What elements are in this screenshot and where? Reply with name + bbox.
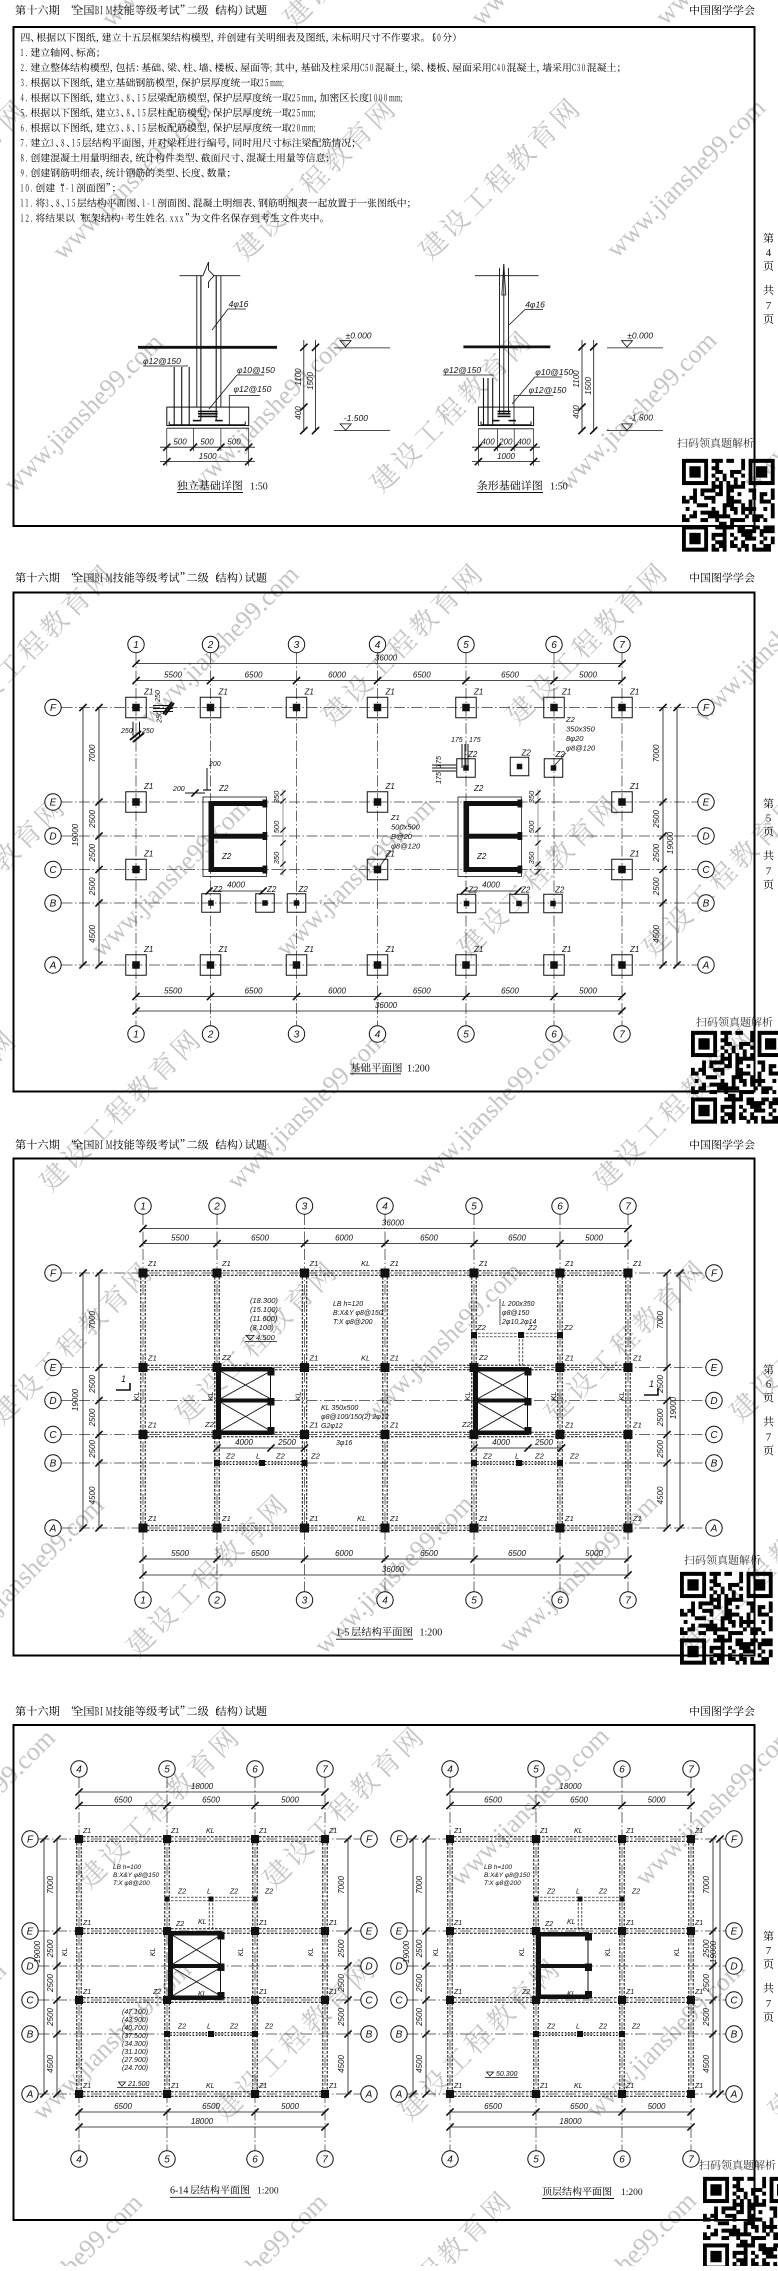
svg-text:φ10@150: φ10@150	[237, 365, 275, 375]
svg-text:1:200: 1:200	[621, 2188, 643, 2198]
svg-text:200: 200	[172, 786, 185, 793]
svg-text:A: A	[365, 2090, 373, 2101]
svg-text:B: B	[366, 2030, 373, 2041]
svg-text:D: D	[710, 1396, 717, 1407]
svg-text:400: 400	[572, 405, 581, 419]
svg-text:Z2: Z2	[468, 886, 479, 895]
svg-text:2500: 2500	[88, 810, 97, 829]
svg-text:(40.700): (40.700)	[122, 2025, 148, 2032]
svg-text:2500: 2500	[277, 1438, 296, 1447]
svg-text:5: 5	[766, 813, 772, 825]
svg-text:Z2: Z2	[555, 750, 566, 759]
svg-text:6000: 6000	[335, 1234, 353, 1243]
svg-text:6500: 6500	[420, 1234, 438, 1243]
svg-text:C: C	[702, 865, 710, 876]
svg-text:Z1: Z1	[258, 1989, 267, 1996]
svg-text:Z1: Z1	[629, 688, 639, 697]
svg-text:7: 7	[766, 1945, 772, 1957]
svg-text:±0.000: ±0.000	[346, 331, 372, 341]
svg-text:KL: KL	[519, 1948, 526, 1957]
svg-text:4: 4	[382, 1202, 388, 1213]
svg-text:2500: 2500	[337, 2008, 346, 2027]
svg-text:D: D	[730, 1962, 737, 1973]
svg-text:Z1: Z1	[385, 782, 395, 791]
svg-text:B: B	[703, 899, 710, 910]
svg-text:2500: 2500	[652, 810, 661, 829]
svg-text:Z1: Z1	[453, 2083, 462, 2090]
svg-text:4: 4	[76, 2155, 82, 2166]
svg-text:Z2: Z2	[546, 1889, 555, 1896]
svg-text:Z2: Z2	[521, 1989, 530, 1996]
svg-text:7000: 7000	[652, 744, 661, 762]
svg-text:KL: KL	[62, 1948, 69, 1957]
svg-text:6000: 6000	[328, 987, 346, 996]
svg-text:19000: 19000	[666, 831, 675, 854]
svg-text:Z2: Z2	[212, 885, 223, 894]
svg-text:Z1: Z1	[390, 813, 400, 822]
svg-text:4500: 4500	[652, 925, 661, 943]
svg-text:Z1: Z1	[625, 1920, 634, 1927]
svg-text:Z1: Z1	[147, 1514, 157, 1523]
svg-text:4: 4	[382, 1596, 388, 1607]
svg-text:Z2: Z2	[546, 2024, 555, 2031]
svg-text:6000: 6000	[328, 671, 346, 680]
svg-text:400: 400	[481, 438, 495, 447]
svg-text:Z1: Z1	[143, 688, 153, 697]
svg-text:Z2: Z2	[177, 1889, 186, 1896]
svg-text:6500: 6500	[251, 1549, 269, 1558]
svg-text:KL: KL	[308, 1948, 315, 1957]
svg-text:Z1: Z1	[328, 2083, 337, 2090]
svg-text:2500: 2500	[88, 1440, 97, 1459]
svg-text:Z1: Z1	[170, 1828, 179, 1835]
svg-text:E: E	[731, 1927, 738, 1938]
svg-text:KL: KL	[433, 1948, 440, 1957]
svg-text:5000: 5000	[648, 1796, 666, 1805]
svg-text:6500: 6500	[413, 987, 431, 996]
svg-text:5000: 5000	[648, 2102, 666, 2111]
svg-text:2500: 2500	[337, 1939, 346, 1958]
svg-text:A: A	[395, 2090, 403, 2101]
svg-text:2500: 2500	[415, 1939, 424, 1958]
svg-text:19000: 19000	[402, 1940, 411, 1963]
svg-text:250: 250	[155, 690, 162, 703]
svg-text:C: C	[49, 865, 57, 876]
svg-text:Z1: Z1	[82, 1989, 91, 1996]
svg-text:Z1: Z1	[385, 850, 395, 859]
svg-text:F: F	[366, 1835, 373, 1846]
svg-text:4500: 4500	[415, 2055, 424, 2073]
svg-text:Z2: Z2	[266, 885, 277, 894]
svg-text:36000: 36000	[375, 1001, 398, 1010]
svg-text:2500: 2500	[415, 2008, 424, 2027]
svg-text:2: 2	[213, 1596, 220, 1607]
svg-text:4500: 4500	[702, 2055, 711, 2073]
svg-text:350x350: 350x350	[566, 725, 596, 734]
svg-text:F: F	[50, 1269, 57, 1280]
svg-text:3: 3	[294, 640, 300, 651]
svg-text:C: C	[730, 1996, 738, 2007]
svg-text:C: C	[49, 1430, 57, 1441]
svg-text:7000: 7000	[88, 1311, 97, 1329]
svg-text:Z1: Z1	[564, 1354, 574, 1363]
svg-text:Z1: Z1	[82, 2083, 91, 2090]
svg-text:Z2: Z2	[229, 1889, 238, 1896]
svg-text:2500: 2500	[656, 1408, 665, 1427]
svg-text:T:X φ8@200: T:X φ8@200	[333, 1319, 373, 1326]
svg-text:(18.300): (18.300)	[250, 1296, 278, 1305]
svg-text:Z1: Z1	[143, 850, 153, 859]
svg-text:φ10@150: φ10@150	[535, 367, 573, 377]
svg-text:2500: 2500	[415, 1974, 424, 1993]
svg-text:Z2: Z2	[221, 1353, 232, 1362]
svg-text:KL: KL	[206, 1828, 215, 1835]
svg-text:Z2: Z2	[478, 1353, 489, 1362]
svg-text:500x500: 500x500	[391, 823, 421, 832]
svg-text:4: 4	[375, 640, 381, 651]
svg-text:2500: 2500	[88, 843, 97, 862]
svg-text:T:X φ8@200: T:X φ8@200	[113, 1880, 150, 1887]
svg-text:Z2: Z2	[598, 2024, 607, 2031]
svg-text:LB h=100: LB h=100	[484, 1864, 512, 1871]
svg-text:φ8@100/150(2) 2φ12: φ8@100/150(2) 2φ12	[321, 1414, 389, 1421]
svg-text:2500: 2500	[46, 1974, 55, 1993]
svg-text:350: 350	[527, 790, 536, 803]
svg-text:1500: 1500	[199, 452, 217, 461]
svg-text:5: 5	[471, 1596, 477, 1607]
svg-text:E: E	[27, 1927, 34, 1938]
svg-text:500: 500	[272, 820, 281, 833]
svg-text:6500: 6500	[202, 1796, 220, 1805]
svg-text:F: F	[27, 1835, 34, 1846]
svg-text:7: 7	[619, 1030, 625, 1041]
svg-text:2: 2	[213, 1202, 220, 1213]
svg-text:Z1: Z1	[473, 688, 483, 697]
svg-text:Z1: Z1	[328, 1828, 337, 1835]
svg-text:B:X&Y φ8@150: B:X&Y φ8@150	[113, 1872, 160, 1879]
svg-text:(27.900): (27.900)	[122, 2057, 148, 2064]
svg-text:19000: 19000	[71, 823, 80, 846]
svg-text:L: L	[576, 2024, 580, 2031]
svg-text:7000: 7000	[337, 1876, 346, 1894]
svg-text:6000: 6000	[335, 1549, 353, 1558]
svg-text:KL: KL	[361, 1259, 370, 1268]
svg-text:KL: KL	[206, 2083, 215, 2090]
svg-text:L 200x350: L 200x350	[502, 1301, 535, 1308]
svg-text:5500: 5500	[164, 671, 182, 680]
svg-text:Z1: Z1	[389, 1259, 399, 1268]
svg-text:Z2: Z2	[520, 886, 531, 895]
svg-text:Z1: Z1	[694, 1989, 703, 1996]
svg-text:Z1: Z1	[82, 1920, 91, 1927]
svg-text:Z1: Z1	[143, 782, 153, 791]
svg-text:3φ16: 3φ16	[336, 1440, 352, 1447]
svg-text:B:X&Y φ8@150: B:X&Y φ8@150	[484, 1872, 531, 1879]
svg-text:2500: 2500	[702, 2008, 711, 2027]
svg-text:6500: 6500	[501, 671, 519, 680]
svg-text:6500: 6500	[484, 1796, 502, 1805]
svg-text:500: 500	[200, 438, 214, 447]
svg-text:Z2: Z2	[482, 1452, 493, 1461]
svg-text:E: E	[396, 1927, 403, 1938]
svg-text:Z1: Z1	[694, 1920, 703, 1927]
svg-text:KL: KL	[574, 2083, 583, 2090]
svg-text:φ12@150: φ12@150	[143, 356, 181, 366]
svg-text:KL: KL	[294, 1391, 303, 1400]
svg-text:D: D	[702, 832, 709, 843]
svg-text:36000: 36000	[382, 1565, 405, 1574]
svg-text:A: A	[702, 961, 710, 972]
svg-text:Z1: Z1	[258, 2083, 267, 2090]
svg-text:6500: 6500	[484, 2102, 502, 2111]
svg-text:6500: 6500	[202, 2102, 220, 2111]
svg-text:36000: 36000	[382, 1219, 405, 1228]
svg-text:LB h=120: LB h=120	[333, 1301, 363, 1308]
svg-text:4000: 4000	[235, 1438, 253, 1447]
svg-text:A: A	[26, 2090, 34, 2101]
svg-text:1500: 1500	[584, 377, 593, 395]
svg-text:B: B	[50, 1459, 57, 1470]
svg-text:Z1: Z1	[218, 688, 228, 697]
svg-text:4φ16: 4φ16	[229, 299, 249, 309]
svg-text:B@20: B@20	[391, 832, 413, 841]
svg-text:6: 6	[766, 1379, 772, 1391]
svg-text:7000: 7000	[88, 744, 97, 762]
svg-text:(43.900): (43.900)	[122, 2017, 148, 2024]
svg-text:1: 1	[121, 1374, 126, 1384]
svg-text:Z1: Z1	[389, 1354, 399, 1363]
svg-text:B: B	[50, 899, 57, 910]
svg-text:Z1: Z1	[629, 850, 639, 859]
svg-text:1:50: 1:50	[550, 482, 568, 493]
svg-text:4000: 4000	[482, 881, 500, 890]
svg-text:Z2: Z2	[467, 750, 478, 759]
svg-text:Z2: Z2	[565, 715, 576, 724]
svg-text:2500: 2500	[652, 877, 661, 896]
svg-text:4: 4	[76, 1765, 82, 1776]
svg-text:7000: 7000	[702, 1876, 711, 1894]
svg-text:200: 200	[498, 438, 513, 447]
svg-text:6500: 6500	[114, 2102, 132, 2111]
svg-text:500: 500	[527, 820, 536, 833]
svg-text:Z1: Z1	[309, 1421, 319, 1430]
svg-text:(15.100): (15.100)	[250, 1305, 278, 1314]
svg-text:5500: 5500	[171, 1234, 189, 1243]
svg-text:Z1: Z1	[389, 1421, 399, 1430]
svg-text:2: 2	[207, 1030, 214, 1041]
svg-text:B:X&Y φ8@150: B:X&Y φ8@150	[333, 1310, 383, 1317]
svg-text:50.300: 50.300	[496, 2071, 518, 2078]
svg-text:200: 200	[208, 761, 221, 768]
svg-text:1000: 1000	[497, 452, 515, 461]
svg-text:7: 7	[619, 640, 625, 651]
svg-text:Z1: Z1	[632, 1421, 642, 1430]
svg-text:175: 175	[436, 772, 443, 784]
svg-text:Z1: Z1	[694, 1828, 703, 1835]
svg-text:Z2: Z2	[534, 1452, 545, 1461]
svg-text:±0.000: ±0.000	[627, 331, 653, 341]
svg-text:250: 250	[157, 711, 164, 724]
svg-text:18000: 18000	[191, 2117, 214, 2126]
svg-text:Z2: Z2	[221, 852, 232, 861]
svg-text:18000: 18000	[191, 1782, 214, 1791]
svg-text:F: F	[731, 1835, 738, 1846]
svg-text:Z1: Z1	[625, 2083, 634, 2090]
svg-text:A: A	[49, 961, 57, 972]
svg-text:φ12@150: φ12@150	[529, 385, 567, 395]
svg-text:19000: 19000	[709, 1940, 718, 1963]
svg-text:A: A	[730, 2090, 738, 2101]
svg-text:3: 3	[294, 1030, 300, 1041]
svg-text:2500: 2500	[46, 1939, 55, 1958]
svg-text:6: 6	[252, 1765, 258, 1776]
svg-text:1: 1	[140, 1596, 146, 1607]
svg-text:7: 7	[322, 1765, 328, 1776]
svg-text:Z2: Z2	[476, 852, 487, 861]
svg-text:KL: KL	[238, 1948, 245, 1957]
svg-text:19000: 19000	[71, 1388, 80, 1411]
svg-text:4500: 4500	[656, 1486, 665, 1504]
svg-text:B: B	[731, 2030, 738, 2041]
svg-text:Z1: Z1	[258, 1828, 267, 1835]
svg-text:7: 7	[625, 1202, 631, 1213]
svg-text:(34.300): (34.300)	[122, 2041, 148, 2048]
svg-text:Z1: Z1	[304, 945, 314, 954]
svg-text:F: F	[711, 1269, 718, 1280]
svg-text:φ12@150: φ12@150	[443, 365, 481, 375]
svg-text:Z1: Z1	[561, 688, 571, 697]
svg-text:L: L	[207, 1889, 211, 1896]
svg-text:Z2: Z2	[275, 1452, 286, 1461]
svg-text:Z2: Z2	[631, 2024, 640, 2031]
svg-text:Z1: Z1	[478, 1514, 488, 1523]
svg-text:Z2: Z2	[229, 2024, 238, 2031]
svg-text:Z1: Z1	[632, 1354, 642, 1363]
svg-text:Z2: Z2	[544, 1921, 553, 1928]
svg-text:6500: 6500	[570, 2102, 588, 2111]
svg-text:3: 3	[302, 1202, 308, 1213]
svg-text:350: 350	[272, 790, 281, 803]
svg-text:KL: KL	[132, 1391, 141, 1400]
svg-text:D: D	[49, 1396, 56, 1407]
svg-text:B: B	[396, 2030, 403, 2041]
svg-text:7: 7	[766, 300, 772, 312]
svg-text:6500: 6500	[245, 987, 263, 996]
svg-text:21.500: 21.500	[127, 2081, 150, 2088]
svg-text:KL: KL	[574, 1828, 583, 1835]
svg-text:1:50: 1:50	[250, 482, 268, 493]
svg-text:L: L	[207, 2024, 211, 2031]
svg-text:Z1: Z1	[453, 1920, 462, 1927]
svg-text:KL: KL	[549, 1391, 558, 1400]
svg-text:Z2: Z2	[631, 1889, 640, 1896]
svg-text:4500: 4500	[88, 1486, 97, 1504]
svg-text:5000: 5000	[585, 1549, 603, 1558]
svg-text:4: 4	[375, 1030, 381, 1041]
svg-text:-1.500: -1.500	[344, 413, 368, 423]
svg-text:Z2: Z2	[264, 1889, 273, 1896]
svg-text:KL: KL	[150, 1948, 157, 1957]
svg-text:Z2: Z2	[569, 1452, 580, 1461]
svg-text:5000: 5000	[281, 1796, 299, 1805]
svg-text:E: E	[711, 1363, 718, 1374]
svg-text:175: 175	[436, 756, 443, 768]
svg-text:7: 7	[688, 1765, 694, 1776]
svg-text:7: 7	[766, 866, 772, 878]
svg-text:Z2: Z2	[476, 1323, 487, 1332]
svg-text:Z1: Z1	[694, 2083, 703, 2090]
svg-text:Z1: Z1	[309, 1354, 319, 1363]
svg-text:KL: KL	[617, 1391, 626, 1400]
svg-text:KL: KL	[206, 1391, 215, 1400]
svg-text:350: 350	[527, 851, 536, 864]
svg-text:500: 500	[227, 438, 241, 447]
svg-text:Z1: Z1	[629, 945, 639, 954]
svg-text:D: D	[49, 832, 56, 843]
svg-text:T:X φ8@200: T:X φ8@200	[484, 1880, 521, 1887]
svg-text:Z1: Z1	[564, 1421, 574, 1430]
svg-text:18000: 18000	[559, 1782, 582, 1791]
svg-text:2500: 2500	[46, 2008, 55, 2027]
svg-text:Z2: Z2	[310, 1452, 321, 1461]
svg-text:2φ10,2φ14: 2φ10,2φ14	[501, 1319, 537, 1326]
svg-text:6: 6	[551, 640, 557, 651]
svg-text:5: 5	[471, 1202, 477, 1213]
svg-text:6500: 6500	[501, 987, 519, 996]
svg-text:6500: 6500	[245, 671, 263, 680]
svg-text:L: L	[576, 1889, 580, 1896]
svg-text:3: 3	[302, 1596, 308, 1607]
svg-text:L: L	[515, 1452, 519, 1461]
svg-text:Z1: Z1	[143, 945, 153, 954]
svg-text:KL: KL	[198, 1919, 207, 1926]
svg-text:Z2: Z2	[218, 784, 229, 793]
svg-text:Z1: Z1	[564, 1259, 574, 1268]
svg-text:Z1: Z1	[221, 1259, 231, 1268]
svg-text:Z1: Z1	[221, 1514, 231, 1523]
svg-text:E: E	[50, 1363, 57, 1374]
svg-text:Z1: Z1	[385, 945, 395, 954]
svg-text:Z2: Z2	[225, 1452, 236, 1461]
svg-text:Z2: Z2	[204, 1420, 215, 1429]
svg-text:E: E	[703, 798, 710, 809]
svg-text:A: A	[710, 1524, 718, 1535]
svg-text:Z1: Z1	[632, 1514, 642, 1523]
svg-text:Z1: Z1	[389, 1514, 399, 1523]
svg-text:6500: 6500	[114, 1796, 132, 1805]
svg-text:4500: 4500	[46, 2055, 55, 2073]
svg-text:5: 5	[533, 2155, 539, 2166]
svg-text:L: L	[256, 1452, 260, 1461]
svg-text:4: 4	[766, 247, 772, 259]
svg-text:φ12@150: φ12@150	[234, 384, 272, 394]
svg-text:1100: 1100	[572, 370, 581, 388]
svg-text:4500: 4500	[337, 2055, 346, 2073]
svg-text:D: D	[365, 1962, 372, 1973]
svg-text:Z1: Z1	[561, 945, 571, 954]
svg-text:5000: 5000	[585, 1234, 603, 1243]
svg-text:175: 175	[469, 737, 481, 744]
svg-text:7000: 7000	[415, 1876, 424, 1894]
svg-text:Z1: Z1	[632, 1259, 642, 1268]
svg-text:2500: 2500	[652, 843, 661, 862]
svg-text:Z2: Z2	[563, 1323, 574, 1332]
svg-text:7: 7	[766, 1432, 772, 1444]
svg-text:4000: 4000	[227, 881, 245, 890]
svg-text:6500: 6500	[251, 1234, 269, 1243]
svg-text:KL: KL	[605, 1948, 612, 1957]
svg-text:Z2: Z2	[264, 2024, 273, 2031]
